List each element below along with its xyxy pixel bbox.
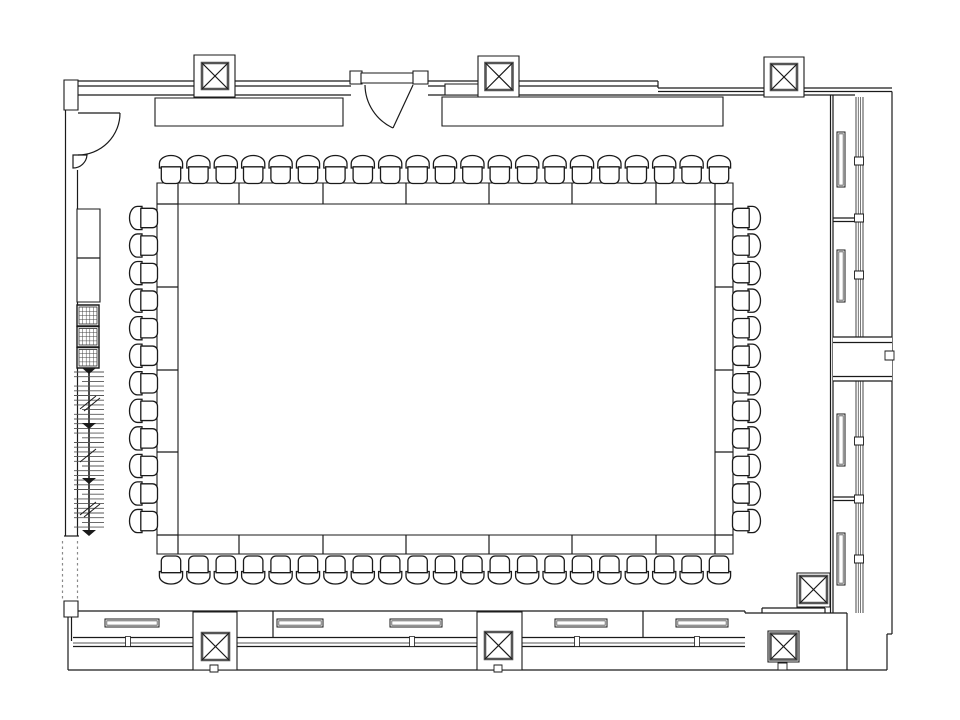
chair-col-right-chair <box>733 372 761 395</box>
chair-seat <box>271 556 290 573</box>
chair-seat <box>733 346 750 365</box>
chair-row-bottom-chair <box>707 556 730 584</box>
chair-row-bottom-chair <box>296 556 319 584</box>
chair-col-left-chair <box>130 206 158 229</box>
door-left-swing-arc <box>78 113 120 155</box>
chair-row-top-chair <box>379 156 402 184</box>
chair-back <box>130 372 142 395</box>
chair-back <box>570 572 593 584</box>
chair-row-bottom-chair <box>570 556 593 584</box>
chair-row-bottom-chair <box>488 556 511 584</box>
coat-rack-slash <box>84 504 100 517</box>
chair-seat <box>627 167 646 184</box>
chair-back <box>406 572 429 584</box>
chair-back <box>748 509 760 532</box>
door-top-leaf <box>393 85 413 128</box>
chair-col-right-chair <box>733 509 761 532</box>
chair-seat <box>161 167 180 184</box>
table-inner-edge <box>178 204 715 535</box>
chair-row-top-chair <box>625 156 648 184</box>
chair-row-bottom-chair <box>598 556 621 584</box>
chair-seat <box>353 556 372 573</box>
window-bottom-3 <box>390 619 442 627</box>
door-vestibule-jamb-left <box>350 71 362 84</box>
chair-seat <box>141 401 158 420</box>
chair-back <box>296 156 319 168</box>
chair-seat <box>141 263 158 282</box>
chair-back <box>130 454 142 477</box>
window-right-4 <box>837 533 845 585</box>
coat-rack-junction <box>82 478 96 484</box>
chair-seat <box>600 167 619 184</box>
chair-back <box>324 572 347 584</box>
chair-back <box>406 156 429 168</box>
chair-row-top-chair <box>516 156 539 184</box>
right-passage-mask <box>833 337 892 381</box>
chair-seat <box>733 208 750 227</box>
chair-row-bottom-chair <box>324 556 347 584</box>
chair-row-top-chair <box>707 156 730 184</box>
mullion-tick-3 <box>575 637 580 647</box>
chair-back <box>707 572 730 584</box>
chair-col-left-chair <box>130 372 158 395</box>
chair-back <box>130 317 142 340</box>
chair-seat <box>463 167 482 184</box>
chair-back <box>324 156 347 168</box>
chair-col-left-chair <box>130 289 158 312</box>
chair-back <box>130 482 142 505</box>
chair-col-right-chair <box>733 482 761 505</box>
chair-seat <box>408 167 427 184</box>
partition-joint-6 <box>855 555 864 563</box>
window-bottom-2 <box>277 619 323 627</box>
window-bottom-5 <box>676 619 728 627</box>
chair-back <box>242 156 265 168</box>
chair-col-left-chair <box>130 509 158 532</box>
chair-col-right-chair <box>733 454 761 477</box>
chair-row-bottom-chair <box>433 556 456 584</box>
chair-col-left-chair <box>130 344 158 367</box>
chair-seat <box>298 556 317 573</box>
chair-row-top-chair <box>488 156 511 184</box>
credenza-top-1 <box>155 98 343 126</box>
chair-back <box>707 156 730 168</box>
chair-row-top-chair <box>159 156 182 184</box>
chair-back <box>748 427 760 450</box>
chair-back <box>625 572 648 584</box>
chair-row-top-chair <box>461 156 484 184</box>
chair-back <box>488 156 511 168</box>
credenza-top-2 <box>442 97 723 126</box>
mullion-tick-4 <box>695 637 700 647</box>
chair-row-bottom-chair <box>242 556 265 584</box>
chair-back <box>130 344 142 367</box>
chair-seat <box>216 167 235 184</box>
chair-back <box>748 317 760 340</box>
chair-col-left-chair <box>130 399 158 422</box>
chair-back <box>159 156 182 168</box>
chair-back <box>516 156 539 168</box>
chair-back <box>543 572 566 584</box>
column-base-notch <box>778 663 787 670</box>
chair-back <box>351 156 374 168</box>
door-left-stop <box>73 155 87 168</box>
chair-seat <box>141 374 158 393</box>
chair-col-left-chair <box>130 317 158 340</box>
chair-back <box>680 572 703 584</box>
chair-row-top-chair <box>680 156 703 184</box>
chair-row-bottom-chair <box>269 556 292 584</box>
chair-row-bottom-chair <box>461 556 484 584</box>
chair-seat <box>141 429 158 448</box>
chair-seat <box>271 167 290 184</box>
chair-seat <box>490 167 509 184</box>
door-vestibule-lintel <box>361 73 415 83</box>
pilaster-bottom-left <box>64 601 78 617</box>
credenza-left <box>77 209 100 302</box>
chair-row-bottom-chair <box>159 556 182 584</box>
chair-back <box>748 262 760 285</box>
chair-seat <box>353 167 372 184</box>
column-base-notch <box>210 665 218 672</box>
chair-seat <box>189 556 208 573</box>
chair-row-bottom-chair <box>516 556 539 584</box>
chair-row-top-chair <box>187 156 210 184</box>
chair-seat <box>655 167 674 184</box>
chair-back <box>130 289 142 312</box>
chair-row-bottom-chair <box>543 556 566 584</box>
chair-seat <box>709 556 728 573</box>
chair-col-right-chair <box>733 234 761 257</box>
floor-plan-canvas <box>0 0 960 720</box>
chair-seat <box>733 429 750 448</box>
chair-col-right-chair <box>733 427 761 450</box>
chair-seat <box>733 374 750 393</box>
chair-seat <box>490 556 509 573</box>
chair-row-bottom-chair <box>680 556 703 584</box>
chair-seat <box>733 401 750 420</box>
chair-row-top-chair <box>570 156 593 184</box>
chair-back <box>748 399 760 422</box>
chair-seat <box>435 167 454 184</box>
chair-back <box>461 156 484 168</box>
chair-back <box>543 156 566 168</box>
chair-seat <box>518 556 537 573</box>
window-right-3 <box>837 414 845 466</box>
chair-seat <box>189 167 208 184</box>
chair-seat <box>141 319 158 338</box>
chair-seat <box>733 456 750 475</box>
chair-row-top-chair <box>543 156 566 184</box>
chair-back <box>351 572 374 584</box>
chair-seat <box>545 556 564 573</box>
chair-seat <box>733 291 750 310</box>
window-bottom-4 <box>555 619 607 627</box>
chair-back <box>625 156 648 168</box>
chair-seat <box>141 236 158 255</box>
chair-seat <box>733 263 750 282</box>
chair-seat <box>141 291 158 310</box>
chair-seat <box>141 511 158 530</box>
chair-back <box>598 572 621 584</box>
chair-back <box>187 156 210 168</box>
chair-back <box>296 572 319 584</box>
chair-back <box>269 156 292 168</box>
chair-row-bottom-chair <box>351 556 374 584</box>
chair-back <box>748 344 760 367</box>
chair-seat <box>435 556 454 573</box>
chair-row-top-chair <box>406 156 429 184</box>
chair-seat <box>733 319 750 338</box>
window-right-1 <box>837 132 845 187</box>
chair-seat <box>627 556 646 573</box>
chair-back <box>130 399 142 422</box>
coat-rack-junction <box>82 530 96 536</box>
wall-soffit-step <box>445 84 481 95</box>
chair-back <box>433 156 456 168</box>
window-right-2 <box>837 250 845 302</box>
coat-rack-junction <box>82 368 96 374</box>
chair-seat <box>572 167 591 184</box>
chair-seat <box>733 236 750 255</box>
chair-col-left-chair <box>130 427 158 450</box>
chair-row-bottom-chair <box>214 556 237 584</box>
chair-seat <box>244 556 263 573</box>
chair-back <box>242 572 265 584</box>
chair-row-top-chair <box>598 156 621 184</box>
chair-back <box>130 234 142 257</box>
chair-back <box>748 454 760 477</box>
chair-back <box>130 509 142 532</box>
mullion-tick-1 <box>126 637 131 647</box>
chair-seat <box>733 511 750 530</box>
chair-back <box>214 572 237 584</box>
chair-row-top-chair <box>214 156 237 184</box>
chair-seat <box>463 556 482 573</box>
window-bottom-1 <box>105 619 159 627</box>
chair-back <box>653 572 676 584</box>
chair-seat <box>244 167 263 184</box>
chair-row-bottom-chair <box>379 556 402 584</box>
chair-seat <box>326 556 345 573</box>
chair-row-top-chair <box>242 156 265 184</box>
chair-back <box>214 156 237 168</box>
chair-row-top-chair <box>653 156 676 184</box>
chair-seat <box>682 556 701 573</box>
chair-col-left-chair <box>130 234 158 257</box>
chair-row-bottom-chair <box>187 556 210 584</box>
partition-joint-1 <box>855 157 864 165</box>
chair-back <box>379 572 402 584</box>
chair-seat <box>709 167 728 184</box>
chair-col-right-chair <box>733 344 761 367</box>
chair-seat <box>326 167 345 184</box>
chair-back <box>159 572 182 584</box>
chair-back <box>598 156 621 168</box>
chair-seat <box>381 167 400 184</box>
chair-back <box>748 234 760 257</box>
chair-back <box>187 572 210 584</box>
chair-seat <box>545 167 564 184</box>
chair-back <box>748 289 760 312</box>
chair-row-top-chair <box>269 156 292 184</box>
chair-row-top-chair <box>324 156 347 184</box>
partition-joint-5 <box>855 495 864 503</box>
chair-seat <box>298 167 317 184</box>
chair-row-bottom-chair <box>653 556 676 584</box>
chair-seat <box>141 346 158 365</box>
chair-back <box>488 572 511 584</box>
chair-col-right-chair <box>733 206 761 229</box>
chair-col-right-chair <box>733 262 761 285</box>
chair-back <box>516 572 539 584</box>
chair-seat <box>518 167 537 184</box>
chair-col-left-chair <box>130 262 158 285</box>
mullion-tick-2 <box>410 637 415 647</box>
chair-col-left-chair <box>130 482 158 505</box>
chair-back <box>461 572 484 584</box>
chair-back <box>433 572 456 584</box>
column-base-notch <box>494 665 502 672</box>
chair-seat <box>141 456 158 475</box>
floor-plan-page <box>0 0 960 720</box>
chair-seat <box>216 556 235 573</box>
chair-seat <box>141 208 158 227</box>
chair-back <box>130 262 142 285</box>
chair-col-right-chair <box>733 317 761 340</box>
chair-back <box>130 427 142 450</box>
chair-seat <box>408 556 427 573</box>
chair-row-bottom-chair <box>625 556 648 584</box>
chair-row-top-chair <box>433 156 456 184</box>
coat-rack-slash <box>80 449 96 462</box>
chair-seat <box>572 556 591 573</box>
partition-joint-2 <box>855 214 864 222</box>
chair-row-top-chair <box>296 156 319 184</box>
chair-back <box>680 156 703 168</box>
pilaster-top-left <box>64 80 78 110</box>
chair-row-top-chair <box>351 156 374 184</box>
chair-back <box>653 156 676 168</box>
door-vestibule-jamb-right <box>413 71 428 84</box>
door-top-swing-arc <box>365 85 393 128</box>
partition-joint-4 <box>855 437 864 445</box>
chair-seat <box>733 484 750 503</box>
chair-seat <box>161 556 180 573</box>
chair-col-right-chair <box>733 399 761 422</box>
partition-joint-3 <box>855 271 864 279</box>
chair-back <box>130 206 142 229</box>
chair-row-bottom-chair <box>406 556 429 584</box>
chair-seat <box>682 167 701 184</box>
chair-back <box>269 572 292 584</box>
chair-back <box>379 156 402 168</box>
chair-col-left-chair <box>130 454 158 477</box>
chair-back <box>748 206 760 229</box>
chair-back <box>748 482 760 505</box>
chair-seat <box>655 556 674 573</box>
chair-seat <box>600 556 619 573</box>
chair-seat <box>141 484 158 503</box>
chair-back <box>570 156 593 168</box>
chair-back <box>748 372 760 395</box>
right-passage-tab <box>885 351 894 360</box>
coat-rack-slash <box>80 396 96 409</box>
chair-col-right-chair <box>733 289 761 312</box>
chair-seat <box>381 556 400 573</box>
